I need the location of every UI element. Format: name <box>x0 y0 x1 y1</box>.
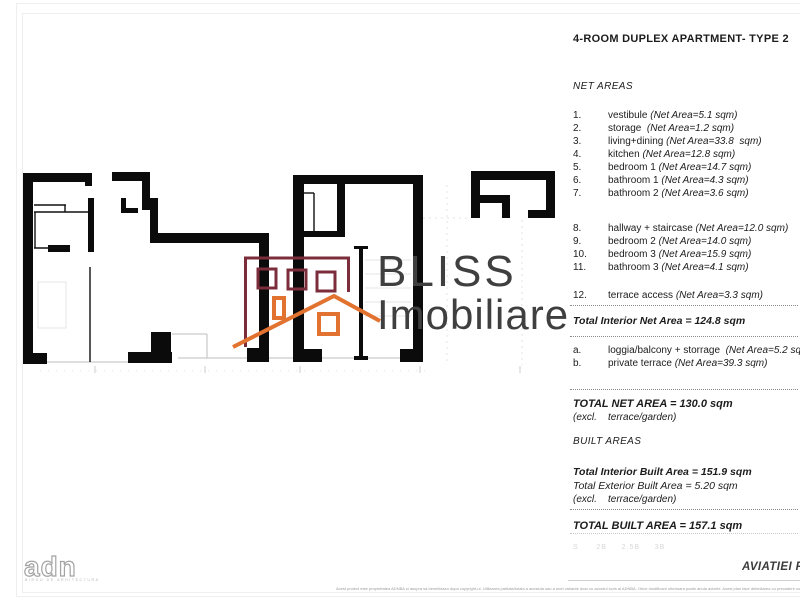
item-name: bedroom 1 <box>608 162 659 173</box>
item-name: terrace access <box>608 290 676 301</box>
plan-threshold-lines <box>47 334 400 362</box>
net-area-item: 2.storage (Net Area=1.2 sqm) <box>573 122 800 135</box>
item-number: 6. <box>573 174 608 187</box>
net-areas-extras-list: a.loggia/balcony + storrage (Net Area=5.… <box>573 344 800 370</box>
separator-dotted-3 <box>570 389 798 390</box>
net-area-item: 10.bedroom 3 (Net Area=15.9 sqm) <box>573 248 800 261</box>
item-area: (Net Area=33.8 sqm) <box>666 136 762 147</box>
item-number: 9. <box>573 235 608 248</box>
net-area-item: 6.bathroom 1 (Net Area=4.3 sqm) <box>573 174 800 187</box>
apartment-type-tabs: S 2B 2.5B 3B <box>573 544 665 551</box>
watermark-bliss: BLISS <box>377 250 517 294</box>
item-area: (Net Area=3.6 sqm) <box>661 188 748 199</box>
item-number: 1. <box>573 109 608 122</box>
item-area: (Net Area=12.0 sqm) <box>696 223 789 234</box>
net-area-item: 5.bedroom 1 (Net Area=14.7 sqm) <box>573 161 800 174</box>
item-area: (Net Area=15.9 sqm) <box>659 249 752 260</box>
item-name: bathroom 3 <box>608 262 661 273</box>
item-name: bathroom 1 <box>608 175 661 186</box>
item-area: (Net Area=1.2 sqm) <box>647 123 734 134</box>
item-name: hallway + staircase <box>608 223 696 234</box>
item-name: storage <box>608 123 647 134</box>
left-unit-thin-walls <box>34 205 90 362</box>
net-area-item: 9.bedroom 2 (Net Area=14.0 sqm) <box>573 235 800 248</box>
item-name: kitchen <box>608 149 642 160</box>
net-area-extra-item: a.loggia/balcony + storrage (Net Area=5.… <box>573 344 800 357</box>
separator-dotted-5 <box>570 533 798 534</box>
drawing-sheet: { "title": "4-ROOM DUPLEX APARTMENT- TYP… <box>0 0 800 600</box>
item-name: bedroom 2 <box>608 236 659 247</box>
item-area: (Net Area=14.0 sqm) <box>659 236 752 247</box>
item-name: vestibule <box>608 110 650 121</box>
total-exterior-built-area: Total Exterior Built Area = 5.20 sqm <box>573 480 738 492</box>
right-unit-walls <box>471 171 555 218</box>
total-interior-built-area: Total Interior Built Area = 151.9 sqm <box>573 466 752 478</box>
net-area-item: 3.living+dining (Net Area=33.8 sqm) <box>573 135 800 148</box>
item-letter: a. <box>573 344 608 357</box>
item-number: 7. <box>573 187 608 200</box>
total-net-area-note: (excl. terrace/garden) <box>573 412 676 423</box>
separator-dotted-1 <box>570 305 798 306</box>
item-number: 5. <box>573 161 608 174</box>
item-area: (Net Area=4.1 sqm) <box>661 262 748 273</box>
item-letter: b. <box>573 357 608 370</box>
item-area: (Net Area=4.3 sqm) <box>661 175 748 186</box>
middle-unit-thin-walls <box>304 193 314 231</box>
project-name-label: AVIATIEI PA <box>742 561 800 573</box>
item-number: 4. <box>573 148 608 161</box>
architect-sub-label: BIROU DE ARHITECTURA <box>25 578 100 582</box>
item-area: (Net Area=5.2 sqm) <box>726 345 800 356</box>
item-number: 8. <box>573 222 608 235</box>
item-name: private terrace <box>608 358 675 369</box>
item-name: bathroom 2 <box>608 188 661 199</box>
copyright-disclaimer: Acest proiect este proprietatea ADNBA si… <box>336 586 800 591</box>
separator-dotted-2 <box>570 336 798 337</box>
net-areas-heading: NET AREAS <box>573 81 633 92</box>
net-area-extra-item: b.private terrace (Net Area=39.3 sqm) <box>573 357 800 370</box>
total-interior-net-area: Total Interior Net Area = 124.8 sqm <box>573 315 745 327</box>
item-area: (Net Area=5.1 sqm) <box>650 110 737 121</box>
watermark-imobiliare: Imobiliare <box>377 294 569 336</box>
item-number: 10. <box>573 248 608 261</box>
item-number: 3. <box>573 135 608 148</box>
net-area-item: 1.vestibule (Net Area=5.1 sqm) <box>573 109 800 122</box>
built-areas-heading: BUILT AREAS <box>573 436 641 447</box>
page-title: 4-ROOM DUPLEX APARTMENT- TYPE 2 <box>573 33 789 45</box>
item-name: bedroom 3 <box>608 249 659 260</box>
item-name: loggia/balcony + storrage <box>608 345 726 356</box>
net-area-item: 7.bathroom 2 (Net Area=3.6 sqm) <box>573 187 800 200</box>
built-area-note: (excl. terrace/garden) <box>573 494 676 505</box>
item-area: (Net Area=39.3 sqm) <box>675 358 768 369</box>
item-name: living+dining <box>608 136 666 147</box>
net-area-item: 12.terrace access (Net Area=3.3 sqm) <box>573 289 800 302</box>
item-area: (Net Area=3.3 sqm) <box>676 290 763 301</box>
total-built-area: TOTAL BUILT AREA = 157.1 sqm <box>573 520 742 532</box>
net-areas-list: 1.vestibule (Net Area=5.1 sqm) 2.storage… <box>573 109 800 302</box>
left-unit-walls <box>23 172 269 364</box>
footer-divider-line <box>568 580 800 581</box>
net-area-item: 4.kitchen (Net Area=12.8 sqm) <box>573 148 800 161</box>
item-number: 2. <box>573 122 608 135</box>
item-number: 11. <box>573 261 608 274</box>
separator-dotted-4 <box>570 509 798 510</box>
net-area-item: 11.bathroom 3 (Net Area=4.1 sqm) <box>573 261 800 274</box>
item-area: (Net Area=12.8 sqm) <box>642 149 735 160</box>
total-net-area: TOTAL NET AREA = 130.0 sqm <box>573 398 733 410</box>
item-number: 12. <box>573 289 608 302</box>
item-area: (Net Area=14.7 sqm) <box>659 162 752 173</box>
bliss-logo-icon <box>233 257 380 348</box>
net-area-item: 8.hallway + staircase (Net Area=12.0 sqm… <box>573 222 800 235</box>
